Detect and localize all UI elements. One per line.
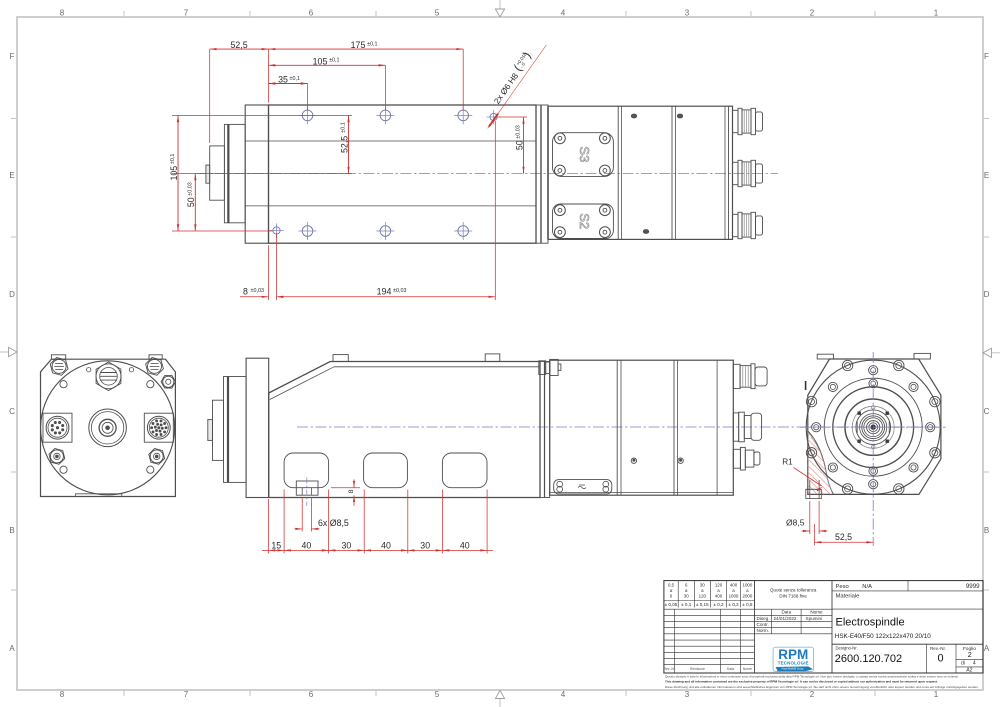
svg-text:DIN 7168 fine: DIN 7168 fine bbox=[779, 594, 807, 599]
svg-text:3: 3 bbox=[685, 8, 690, 17]
svg-text:± 0,1: ± 0,1 bbox=[681, 602, 692, 607]
svg-text:2000: 2000 bbox=[743, 593, 753, 598]
svg-text:Nome: Nome bbox=[743, 667, 752, 671]
svg-text:Ø8,5: Ø8,5 bbox=[786, 518, 805, 528]
svg-text:F: F bbox=[984, 52, 989, 61]
svg-text:8: 8 bbox=[348, 489, 355, 493]
svg-text:B: B bbox=[9, 526, 14, 535]
svg-text:Norm.: Norm. bbox=[757, 628, 770, 633]
svg-text:30: 30 bbox=[420, 540, 430, 550]
svg-text:400: 400 bbox=[715, 593, 723, 598]
svg-text:1: 1 bbox=[934, 690, 939, 699]
svg-text:S3: S3 bbox=[577, 146, 592, 162]
svg-text:± 0,3: ± 0,3 bbox=[728, 602, 739, 607]
svg-text:Spumini: Spumini bbox=[806, 616, 823, 621]
svg-text:15: 15 bbox=[271, 540, 281, 550]
svg-text:Designo-Nr.: Designo-Nr. bbox=[836, 646, 858, 651]
svg-text:30: 30 bbox=[700, 582, 705, 587]
svg-text:Revisione: Revisione bbox=[690, 667, 705, 671]
svg-text:Questo disegno e tutte le info: Questo disegno e tutte le informazioni i… bbox=[665, 674, 959, 678]
svg-text:2600.120.702: 2600.120.702 bbox=[835, 653, 902, 665]
svg-text:175: 175 bbox=[351, 40, 366, 50]
svg-text:8: 8 bbox=[243, 287, 248, 297]
svg-text:B: B bbox=[984, 526, 989, 535]
svg-text:± 0,05: ± 0,05 bbox=[665, 602, 678, 607]
svg-text:HSK-E40/F50 122x122x470 20/10: HSK-E40/F50 122x122x470 20/10 bbox=[835, 633, 931, 640]
svg-text:6: 6 bbox=[309, 8, 314, 17]
svg-text:A: A bbox=[9, 644, 15, 653]
svg-text:±0,03: ±0,03 bbox=[516, 125, 522, 138]
svg-text:±0,1: ±0,1 bbox=[367, 42, 377, 48]
svg-text:A: A bbox=[984, 644, 990, 653]
svg-text:50: 50 bbox=[514, 140, 524, 150]
svg-text:C: C bbox=[984, 407, 990, 416]
svg-text:F: F bbox=[10, 52, 15, 61]
svg-text:52,5: 52,5 bbox=[835, 532, 852, 542]
svg-text:Diese Zeichnung und alle entha: Diese Zeichnung und alle enthaltenen Inf… bbox=[665, 685, 979, 689]
svg-text:Quote senza tolleranza: Quote senza tolleranza bbox=[770, 588, 817, 593]
svg-text:400: 400 bbox=[730, 582, 738, 587]
svg-text:Rev.-Nr.: Rev.-Nr. bbox=[930, 646, 946, 651]
svg-text:Rev.-Nr: Rev.-Nr bbox=[663, 667, 675, 671]
svg-text:di: di bbox=[961, 660, 965, 666]
svg-text:1000: 1000 bbox=[743, 582, 753, 587]
svg-text:Nome: Nome bbox=[810, 610, 823, 615]
svg-text:40: 40 bbox=[302, 540, 312, 550]
svg-text:C: C bbox=[9, 407, 15, 416]
svg-text:40: 40 bbox=[460, 540, 470, 550]
svg-text:N/A: N/A bbox=[862, 584, 872, 590]
svg-text:Materiale: Materiale bbox=[836, 594, 860, 600]
svg-text:30: 30 bbox=[342, 540, 352, 550]
svg-text:Contr.: Contr. bbox=[757, 622, 769, 627]
svg-text:7: 7 bbox=[184, 690, 189, 699]
svg-text:1: 1 bbox=[934, 8, 939, 17]
svg-text:4: 4 bbox=[561, 690, 566, 699]
svg-text:±0,03: ±0,03 bbox=[393, 288, 406, 294]
svg-text:A2: A2 bbox=[966, 667, 972, 673]
svg-text:TECNOLOGIE: TECNOLOGIE bbox=[778, 660, 809, 665]
svg-text:105: 105 bbox=[313, 56, 328, 66]
svg-text:7: 7 bbox=[184, 8, 189, 17]
svg-text:E: E bbox=[9, 171, 14, 180]
svg-text:5: 5 bbox=[435, 8, 440, 17]
svg-text:4: 4 bbox=[561, 8, 566, 17]
svg-text:This drawing and all informati: This drawing and all information contain… bbox=[665, 680, 938, 684]
svg-text:Diseg.: Diseg. bbox=[757, 616, 770, 621]
svg-text:6: 6 bbox=[309, 690, 314, 699]
svg-text:±0,03: ±0,03 bbox=[188, 182, 194, 195]
svg-text:24/01/2022: 24/01/2022 bbox=[774, 616, 797, 621]
svg-text:0: 0 bbox=[938, 652, 944, 664]
svg-text:Peso: Peso bbox=[836, 584, 849, 590]
svg-text:Electrospindle: Electrospindle bbox=[836, 616, 905, 628]
svg-text:52,5: 52,5 bbox=[231, 40, 248, 50]
svg-text:±0,03: ±0,03 bbox=[251, 288, 264, 294]
svg-text:8: 8 bbox=[60, 690, 65, 699]
svg-text:E: E bbox=[984, 171, 989, 180]
svg-text:2: 2 bbox=[810, 8, 815, 17]
svg-text:Data: Data bbox=[727, 667, 734, 671]
svg-text:2: 2 bbox=[968, 650, 972, 659]
svg-text:4: 4 bbox=[973, 660, 976, 666]
svg-text:± 0,5: ± 0,5 bbox=[742, 602, 753, 607]
svg-text:194: 194 bbox=[377, 287, 392, 297]
svg-text:6x Ø8,5: 6x Ø8,5 bbox=[318, 518, 349, 528]
svg-text:2: 2 bbox=[810, 690, 815, 699]
svg-text:±0,1: ±0,1 bbox=[341, 122, 347, 132]
svg-text:D: D bbox=[984, 290, 990, 299]
svg-text:3: 3 bbox=[685, 690, 690, 699]
svg-text:30: 30 bbox=[684, 593, 689, 598]
svg-text:±0,1: ±0,1 bbox=[290, 76, 300, 82]
svg-text:± 0,15: ± 0,15 bbox=[696, 602, 709, 607]
svg-text:5: 5 bbox=[435, 690, 440, 699]
svg-text:35: 35 bbox=[278, 75, 288, 85]
svg-text:120: 120 bbox=[699, 593, 707, 598]
svg-text:120: 120 bbox=[715, 582, 723, 587]
svg-text:Data: Data bbox=[781, 610, 791, 615]
svg-text:± 0,2: ± 0,2 bbox=[713, 602, 724, 607]
svg-text:R1: R1 bbox=[782, 458, 793, 467]
svg-text:±0,1: ±0,1 bbox=[329, 58, 339, 64]
svg-text:Kiwa MultiMill Group: Kiwa MultiMill Group bbox=[782, 668, 804, 671]
svg-text:1000: 1000 bbox=[729, 593, 739, 598]
svg-text:52,5: 52,5 bbox=[339, 136, 349, 153]
svg-text:±0,1: ±0,1 bbox=[170, 154, 176, 164]
svg-text:40: 40 bbox=[381, 540, 391, 550]
svg-text:8: 8 bbox=[60, 8, 65, 17]
svg-text:9999: 9999 bbox=[966, 583, 980, 590]
svg-text:0,5: 0,5 bbox=[668, 582, 675, 587]
svg-text:S2: S2 bbox=[577, 213, 592, 229]
svg-text:50: 50 bbox=[186, 197, 196, 207]
svg-text:D: D bbox=[9, 290, 15, 299]
